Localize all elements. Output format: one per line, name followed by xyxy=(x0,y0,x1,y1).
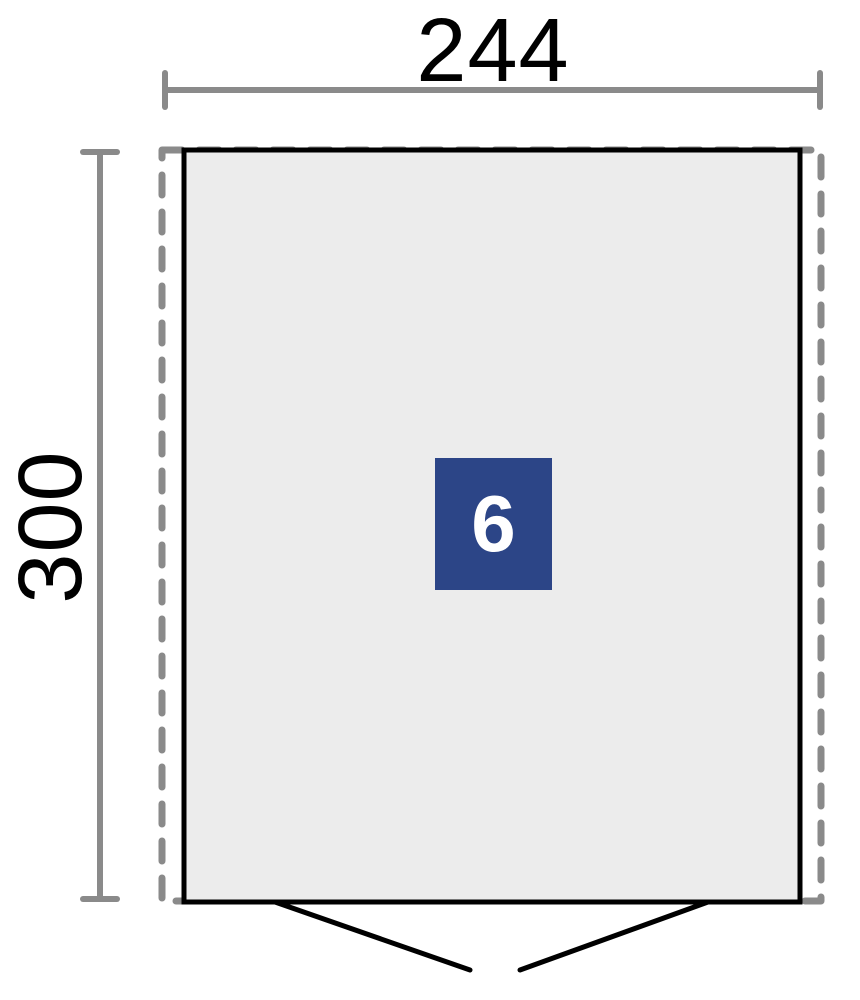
plan-drawing xyxy=(0,0,860,1000)
door-swing-right xyxy=(520,902,708,970)
door-swing-left xyxy=(275,902,470,970)
size-badge: 6 xyxy=(435,458,552,590)
size-badge-label: 6 xyxy=(471,484,516,564)
floor-plan-diagram: 244 300 6 xyxy=(0,0,860,1000)
